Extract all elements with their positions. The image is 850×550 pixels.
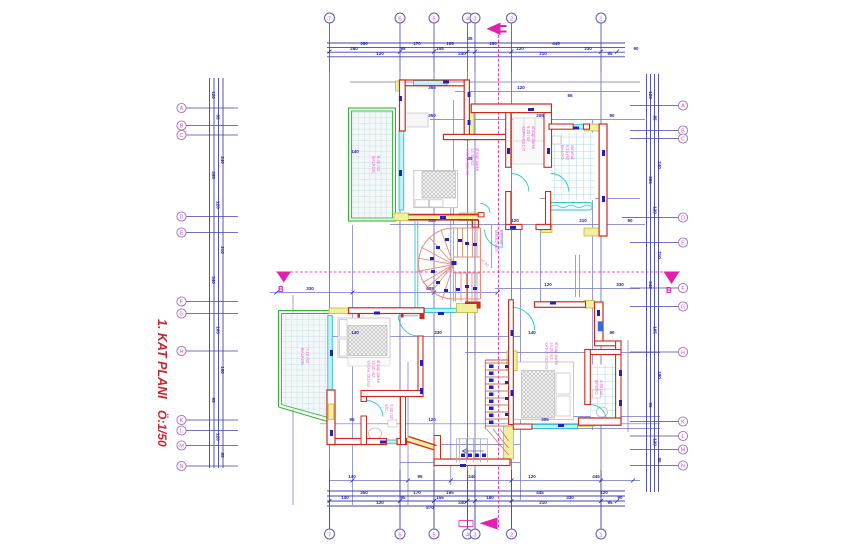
svg-text:870: 870: [426, 505, 434, 510]
svg-text:3.80 m2: 3.80 m2: [599, 380, 604, 396]
svg-text:350: 350: [360, 490, 368, 495]
svg-text:N: N: [681, 464, 685, 470]
svg-text:H: H: [180, 349, 184, 355]
svg-text:YATAK ODASI: YATAK ODASI: [544, 342, 549, 369]
svg-text:95: 95: [211, 397, 216, 403]
svg-text:7: 7: [328, 533, 331, 539]
svg-text:330: 330: [584, 46, 592, 51]
svg-text:165: 165: [446, 490, 454, 495]
svg-text:WC: WC: [384, 404, 389, 411]
svg-text:140: 140: [528, 330, 536, 335]
svg-text:A: A: [180, 106, 184, 112]
svg-text:MERDIVEN: MERDIVEN: [494, 230, 499, 252]
svg-text:210: 210: [539, 51, 547, 56]
svg-text:A: A: [681, 104, 685, 110]
svg-text:120: 120: [516, 46, 524, 51]
svg-text:165: 165: [216, 326, 221, 334]
svg-text:G: G: [179, 312, 183, 318]
svg-text:240: 240: [458, 51, 466, 56]
svg-text:B: B: [681, 129, 685, 135]
svg-text:95: 95: [648, 402, 653, 408]
svg-text:120: 120: [428, 417, 436, 422]
svg-text:6: 6: [398, 533, 401, 539]
svg-text:140: 140: [351, 149, 359, 154]
svg-text:445: 445: [552, 41, 560, 46]
svg-text:9.20 m2: 9.20 m2: [526, 126, 531, 142]
svg-text:120: 120: [511, 218, 519, 223]
svg-text:55: 55: [567, 93, 573, 98]
svg-text:120: 120: [600, 490, 608, 495]
svg-text:305: 305: [541, 417, 549, 422]
svg-text:240: 240: [468, 474, 476, 479]
svg-text:140: 140: [351, 330, 359, 335]
svg-text:95: 95: [607, 51, 613, 56]
svg-text:120: 120: [517, 85, 525, 90]
svg-text:180: 180: [489, 41, 497, 46]
svg-text:12.10 m2: 12.10 m2: [371, 360, 376, 378]
svg-text:90: 90: [627, 218, 633, 223]
svg-text:330: 330: [566, 495, 574, 500]
svg-text:165: 165: [653, 326, 658, 334]
svg-text:ahsap parke: ahsap parke: [531, 126, 536, 150]
svg-text:mermer: mermer: [499, 230, 504, 245]
svg-text:6: 6: [398, 17, 401, 23]
svg-text:365: 365: [428, 85, 436, 90]
svg-text:120: 120: [653, 438, 658, 446]
svg-text:3: 3: [473, 533, 476, 539]
svg-text:355: 355: [211, 171, 216, 179]
svg-text:120: 120: [216, 201, 221, 209]
svg-text:YATAK ODASI: YATAK ODASI: [465, 148, 470, 175]
svg-text:D: D: [681, 216, 685, 222]
svg-text:B: B: [666, 286, 672, 295]
svg-text:7.10 m2: 7.10 m2: [305, 348, 310, 364]
svg-text:405: 405: [426, 286, 434, 291]
svg-text:ahsap parke: ahsap parke: [376, 360, 381, 384]
svg-text:155: 155: [436, 46, 444, 51]
svg-text:90: 90: [633, 46, 639, 51]
svg-text:85: 85: [657, 457, 662, 463]
svg-text:7: 7: [328, 17, 331, 23]
svg-text:95: 95: [607, 500, 613, 505]
svg-text:L: L: [681, 434, 684, 440]
svg-text:BANYO: BANYO: [560, 145, 565, 160]
svg-text:85: 85: [653, 115, 658, 121]
svg-text:165: 165: [446, 41, 454, 46]
svg-text:210: 210: [220, 246, 225, 254]
svg-text:1: 1: [599, 17, 602, 23]
svg-text:120: 120: [544, 282, 552, 287]
svg-text:310: 310: [428, 218, 436, 223]
svg-text:180: 180: [657, 371, 662, 379]
svg-text:ahsap parke: ahsap parke: [475, 148, 480, 172]
svg-text:340: 340: [211, 276, 216, 284]
svg-text:K: K: [180, 418, 184, 424]
svg-text:120: 120: [528, 474, 536, 479]
svg-text:330: 330: [306, 286, 314, 291]
svg-text:N: N: [180, 464, 184, 470]
svg-text:210: 210: [539, 500, 547, 505]
svg-text:1: 1: [599, 533, 602, 539]
svg-text:240: 240: [657, 161, 662, 169]
svg-text:E: E: [180, 231, 184, 237]
svg-text:2: 2: [510, 17, 513, 23]
svg-text:G: G: [681, 305, 685, 311]
svg-text:120: 120: [653, 206, 658, 214]
svg-text:120: 120: [648, 91, 653, 99]
svg-text:SOFA-GECIT: SOFA-GECIT: [521, 126, 526, 152]
svg-text:1. KAT PLANI: 1. KAT PLANI: [155, 319, 169, 399]
svg-text:2.60 m2: 2.60 m2: [389, 404, 394, 420]
svg-text:140: 140: [348, 474, 356, 479]
svg-text:K: K: [681, 420, 685, 426]
svg-text:85: 85: [220, 452, 225, 458]
svg-text:5: 5: [432, 17, 435, 23]
svg-text:445: 445: [592, 474, 600, 479]
svg-text:B: B: [180, 124, 184, 130]
svg-text:170: 170: [413, 490, 421, 495]
svg-text:6.15 m2: 6.15 m2: [565, 145, 570, 161]
svg-text:350: 350: [360, 41, 368, 46]
svg-text:120: 120: [376, 500, 384, 505]
svg-text:355: 355: [648, 176, 653, 184]
svg-text:C: C: [180, 133, 184, 139]
svg-text:YATAK ODASI: YATAK ODASI: [366, 360, 371, 387]
svg-text:205: 205: [536, 113, 544, 118]
svg-text:170: 170: [413, 41, 421, 46]
svg-text:5: 5: [432, 533, 435, 539]
svg-text:330: 330: [616, 282, 624, 287]
svg-text:BANYO: BANYO: [594, 380, 599, 395]
svg-text:H: H: [681, 350, 685, 356]
svg-text:120: 120: [376, 51, 384, 56]
svg-text:330: 330: [434, 330, 442, 335]
svg-text:280: 280: [350, 46, 358, 51]
svg-text:350: 350: [428, 113, 436, 118]
svg-text:seramik: seramik: [570, 145, 575, 161]
svg-text:8.40 m2: 8.40 m2: [376, 156, 381, 172]
svg-text:E: E: [681, 241, 685, 247]
svg-text:90: 90: [609, 113, 615, 118]
svg-text:120: 120: [211, 91, 216, 99]
svg-text:D: D: [180, 215, 184, 221]
svg-text:120: 120: [216, 433, 221, 441]
svg-text:M: M: [681, 448, 686, 454]
svg-text:140: 140: [341, 495, 349, 500]
svg-text:Ö:1/50: Ö:1/50: [155, 410, 170, 447]
svg-text:M: M: [179, 444, 184, 450]
svg-text:90: 90: [609, 330, 615, 335]
svg-text:35: 35: [467, 36, 473, 41]
svg-text:BALKON: BALKON: [371, 156, 376, 173]
svg-text:240: 240: [220, 156, 225, 164]
svg-text:14.25 m2: 14.25 m2: [549, 342, 554, 360]
svg-text:340: 340: [648, 281, 653, 289]
svg-text:2: 2: [510, 533, 513, 539]
svg-text:210: 210: [579, 218, 587, 223]
svg-text:95: 95: [417, 474, 423, 479]
svg-text:35: 35: [467, 156, 473, 161]
svg-text:445: 445: [536, 490, 544, 495]
svg-text:180: 180: [486, 495, 494, 500]
svg-text:B: B: [278, 285, 284, 294]
svg-text:L: L: [180, 429, 183, 435]
svg-text:95: 95: [349, 417, 355, 422]
svg-text:155: 155: [436, 495, 444, 500]
svg-text:180: 180: [220, 366, 225, 374]
svg-text:ahsap parke: ahsap parke: [554, 342, 559, 366]
svg-text:85: 85: [216, 114, 221, 120]
svg-text:3: 3: [473, 17, 476, 23]
svg-text:C: C: [681, 137, 685, 143]
svg-text:BALKON: BALKON: [300, 348, 305, 365]
svg-text:240: 240: [458, 500, 466, 505]
svg-text:210: 210: [657, 251, 662, 259]
